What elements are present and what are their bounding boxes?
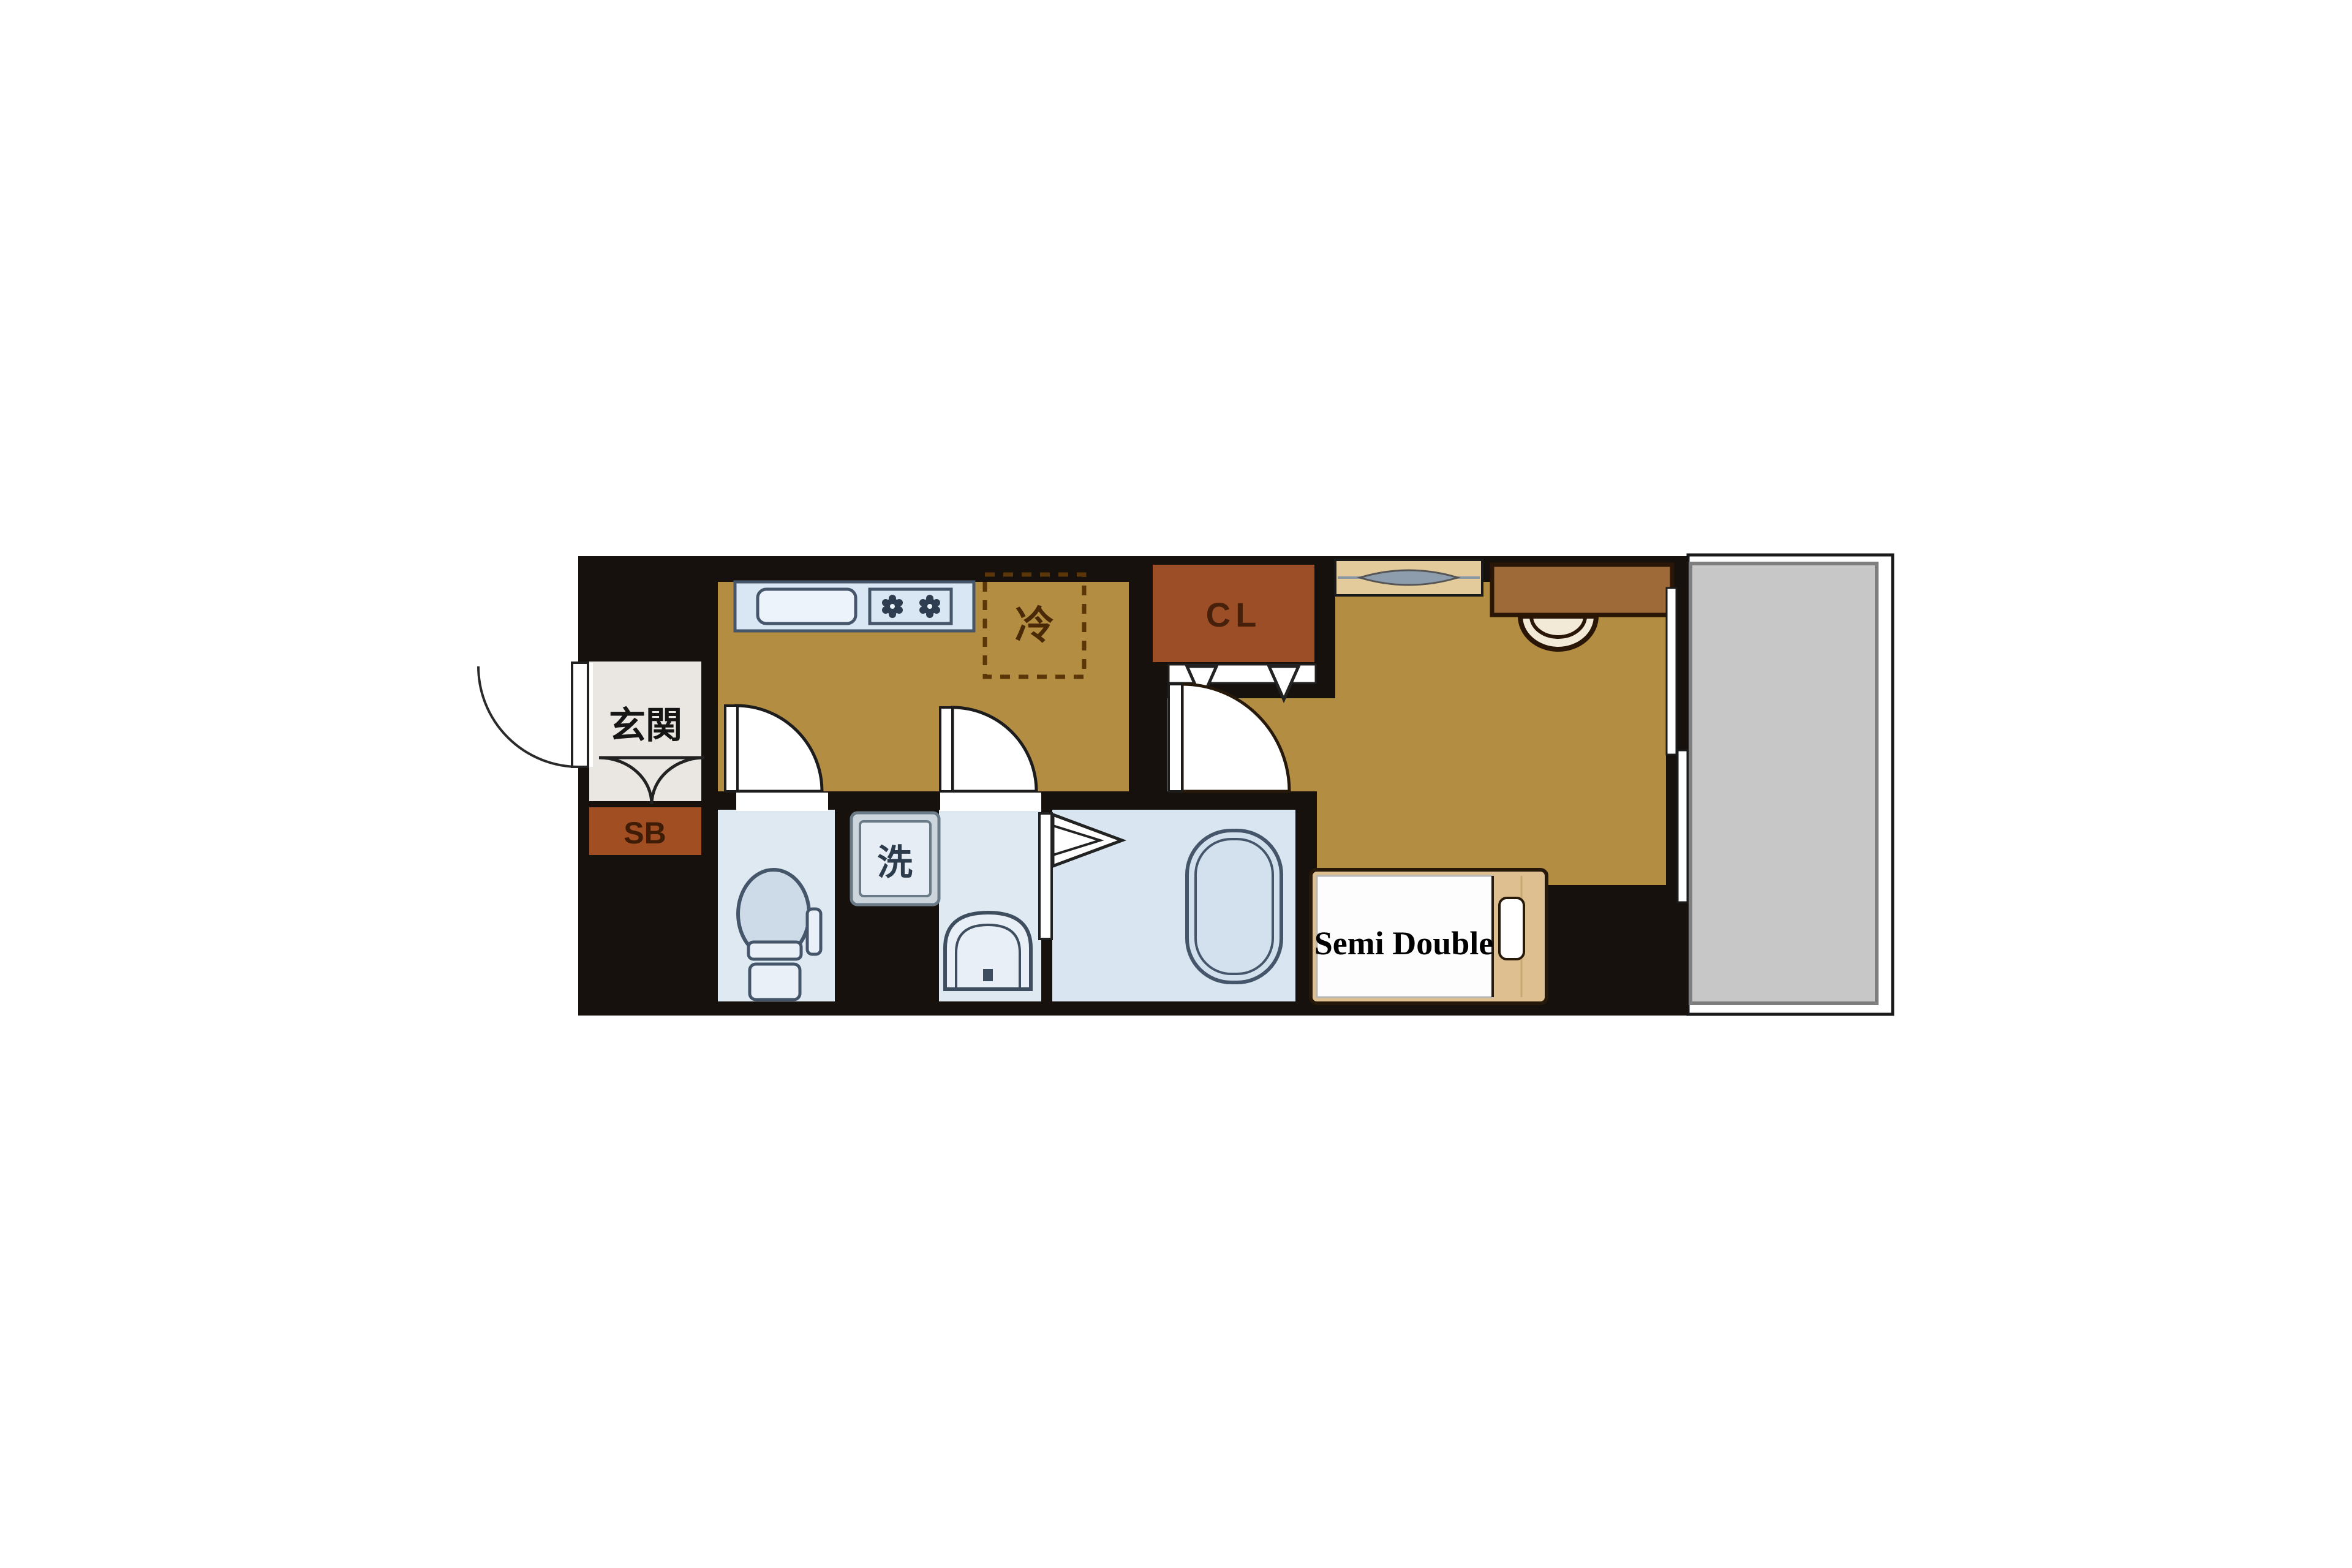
- washing-machine-label: 洗: [877, 842, 913, 883]
- window-icon: [1335, 560, 1482, 595]
- page-background: 玄関 SB: [0, 0, 2352, 1568]
- washing-machine-icon: 洗: [851, 813, 939, 905]
- entrance-label: 玄関: [609, 704, 682, 747]
- closet-label: CL: [1206, 595, 1262, 634]
- sanitary-rooms: 洗: [718, 793, 1295, 1001]
- front-door-swing-arc-icon: [478, 666, 579, 767]
- bed-pillow-icon: [1499, 898, 1524, 959]
- entrance-hall: 玄関 SB: [478, 661, 704, 855]
- bathtub-icon: [1187, 831, 1281, 982]
- front-door-leaf: [572, 663, 588, 767]
- closet-right-wall-stub: [1317, 556, 1335, 698]
- floor-plan: 玄関 SB: [0, 0, 2352, 1568]
- stove: [870, 589, 951, 624]
- washroom-door-leaf: [940, 707, 952, 791]
- kitchen-sink-icon: [758, 589, 856, 624]
- bed: Semi Double: [1311, 870, 1547, 1003]
- toilet-door-leaf: [725, 706, 737, 791]
- washroom-threshold: [940, 793, 1041, 811]
- desk: [1492, 565, 1672, 615]
- balcony-floor: [1691, 563, 1877, 1003]
- bed-label: Semi Double: [1314, 925, 1494, 962]
- closet: CL: [1150, 562, 1317, 699]
- main-room-floor: [1317, 582, 1666, 885]
- shoe-box-label: SB: [624, 816, 666, 850]
- wash-basin-icon: [945, 913, 1031, 989]
- refrigerator-label: 冷: [1015, 603, 1054, 649]
- room-door-leaf: [1169, 684, 1182, 791]
- toilet-threshold: [736, 793, 828, 811]
- balcony: [1688, 555, 1893, 1014]
